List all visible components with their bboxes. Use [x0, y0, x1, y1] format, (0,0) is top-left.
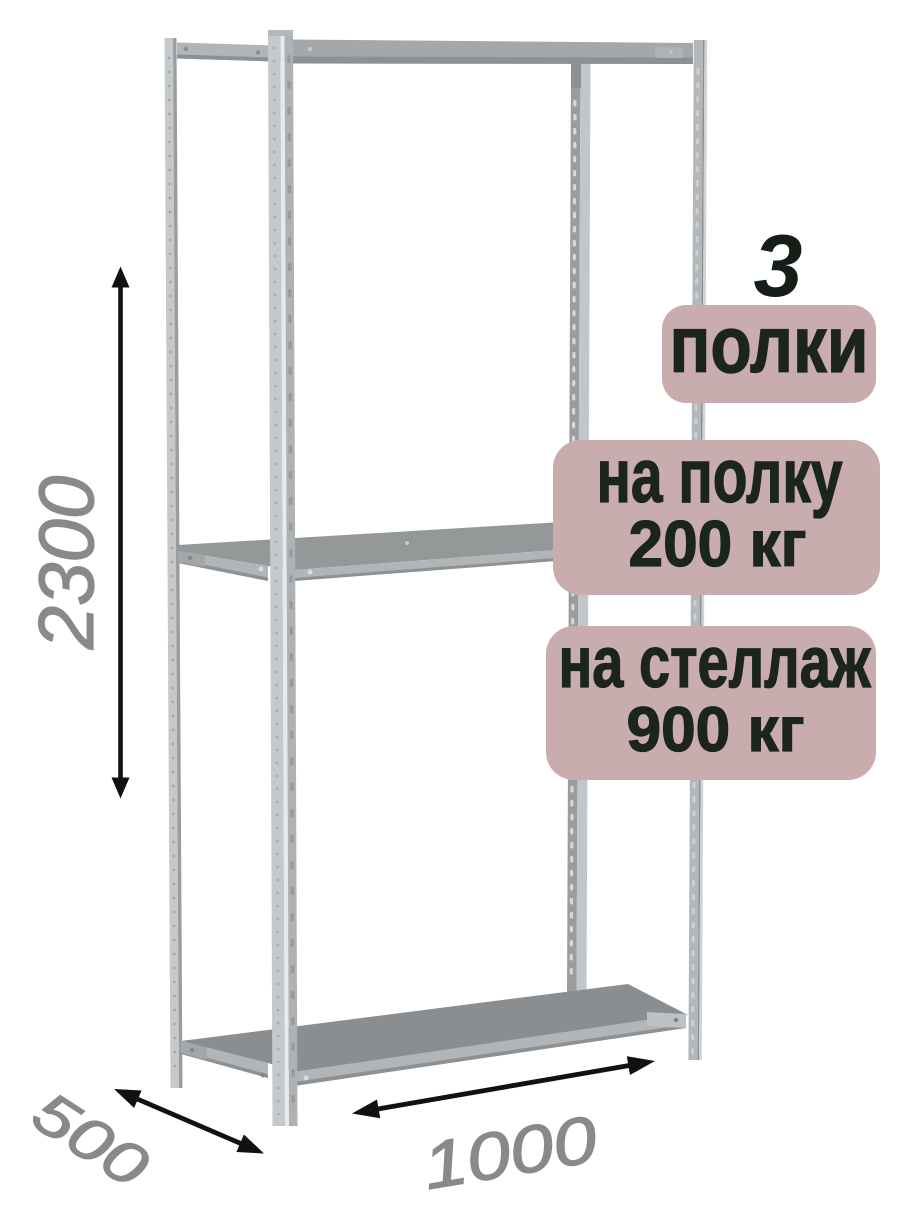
svg-text:200 кг: 200 кг	[629, 507, 807, 580]
svg-text:900 кг: 900 кг	[627, 695, 805, 765]
svg-text:3: 3	[754, 216, 803, 315]
svg-text:на стеллаж: на стеллаж	[559, 623, 872, 703]
svg-text:2300: 2300	[22, 476, 110, 651]
